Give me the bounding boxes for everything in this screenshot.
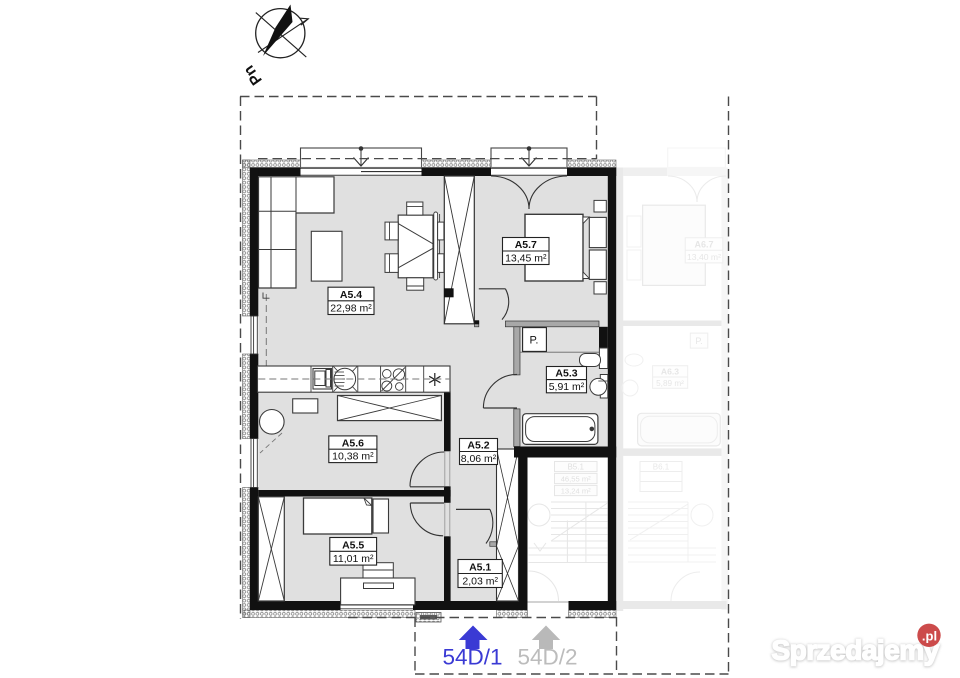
svg-text:A6.3: A6.3 [661,367,679,377]
svg-text:10,38 m²: 10,38 m² [332,451,374,463]
svg-text:A5.3: A5.3 [555,368,577,380]
svg-text:A5.7: A5.7 [515,239,537,251]
svg-text:13,45 m²: 13,45 m² [505,253,547,265]
svg-text:Sprzedajemy: Sprzedajemy [772,635,940,666]
svg-text:54D/2: 54D/2 [517,645,577,670]
svg-text:5,91 m²: 5,91 m² [549,381,585,393]
svg-text:46,55 m²: 46,55 m² [561,474,591,483]
svg-text:13,40 m²: 13,40 m² [687,252,721,262]
svg-text:P.: P. [530,335,539,347]
svg-text:54D/1: 54D/1 [442,645,502,670]
svg-text:P.: P. [695,336,702,346]
svg-text:B6.1: B6.1 [653,463,670,472]
svg-text:2,03 m²: 2,03 m² [462,575,498,587]
svg-text:A6.7: A6.7 [694,240,713,250]
svg-text:.pl: .pl [922,629,937,644]
svg-text:5,89 m²: 5,89 m² [656,379,684,388]
svg-text:B5.1: B5.1 [567,462,584,471]
svg-text:8,06 m²: 8,06 m² [461,453,497,465]
svg-text:A5.2: A5.2 [467,440,489,452]
svg-text:A5.6: A5.6 [342,437,364,449]
svg-text:11,01 m²: 11,01 m² [333,553,374,565]
svg-text:22,98 m²: 22,98 m² [330,302,372,314]
svg-text:13,24 m²: 13,24 m² [561,486,591,495]
svg-text:A5.1: A5.1 [469,562,491,574]
svg-text:A5.5: A5.5 [342,539,364,551]
svg-text:A5.4: A5.4 [340,289,362,301]
